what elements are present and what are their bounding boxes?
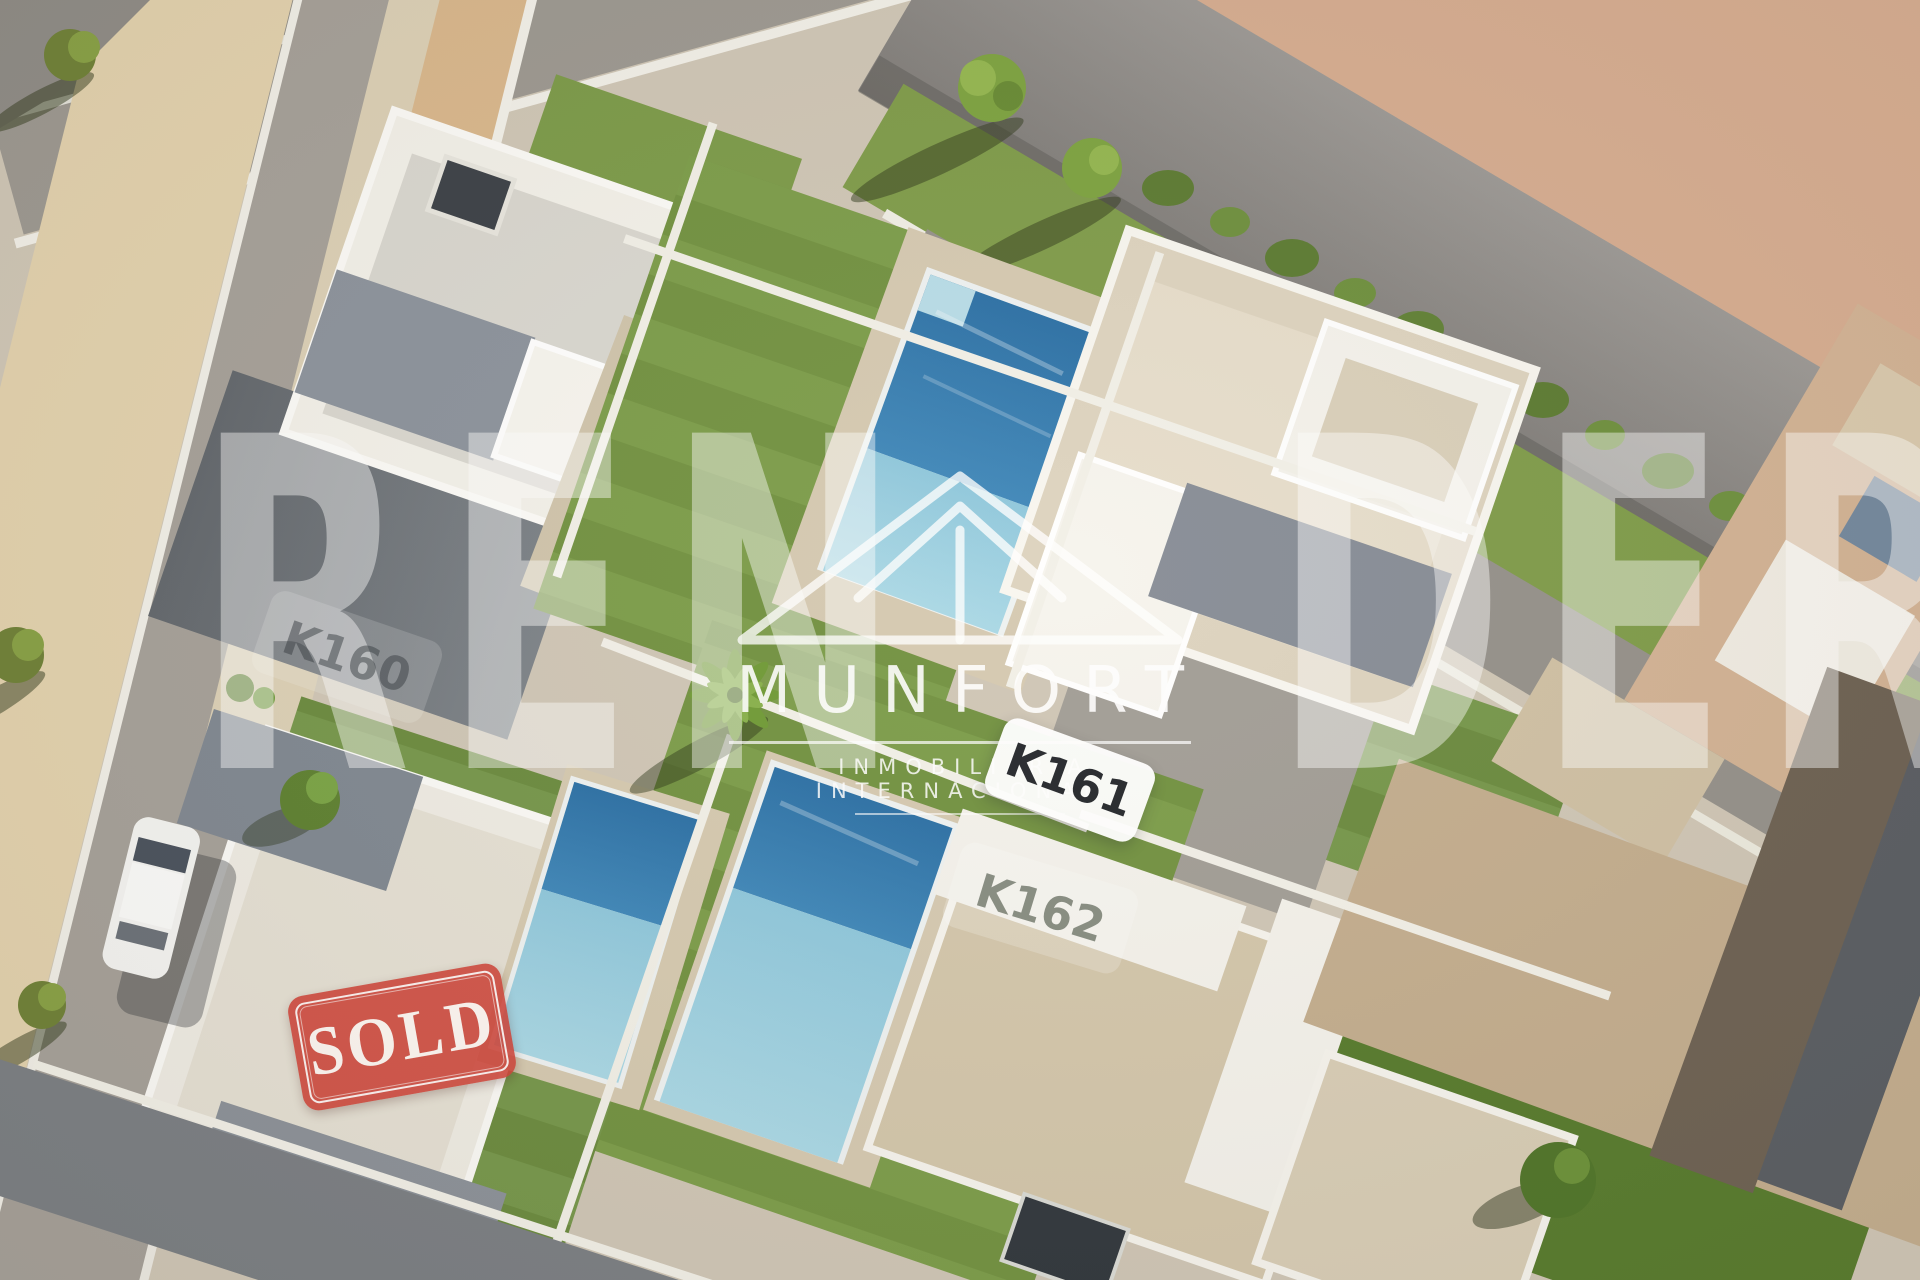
- logo-brand-name: MUNFORT: [690, 654, 1230, 728]
- watermark-text-right: DER: [1272, 380, 1920, 840]
- sold-stamp-label: SOLD: [301, 981, 502, 1093]
- aerial-listing-image: REN DER MUNFORT INMOBILIARIA INTERNACION…: [0, 0, 1920, 1280]
- logo-divider-short: [855, 813, 1065, 815]
- house-roof-arrow-icon: [690, 468, 1230, 648]
- agency-logo: MUNFORT INMOBILIARIA INTERNACIONAL: [690, 468, 1230, 815]
- logo-divider: [729, 741, 1191, 744]
